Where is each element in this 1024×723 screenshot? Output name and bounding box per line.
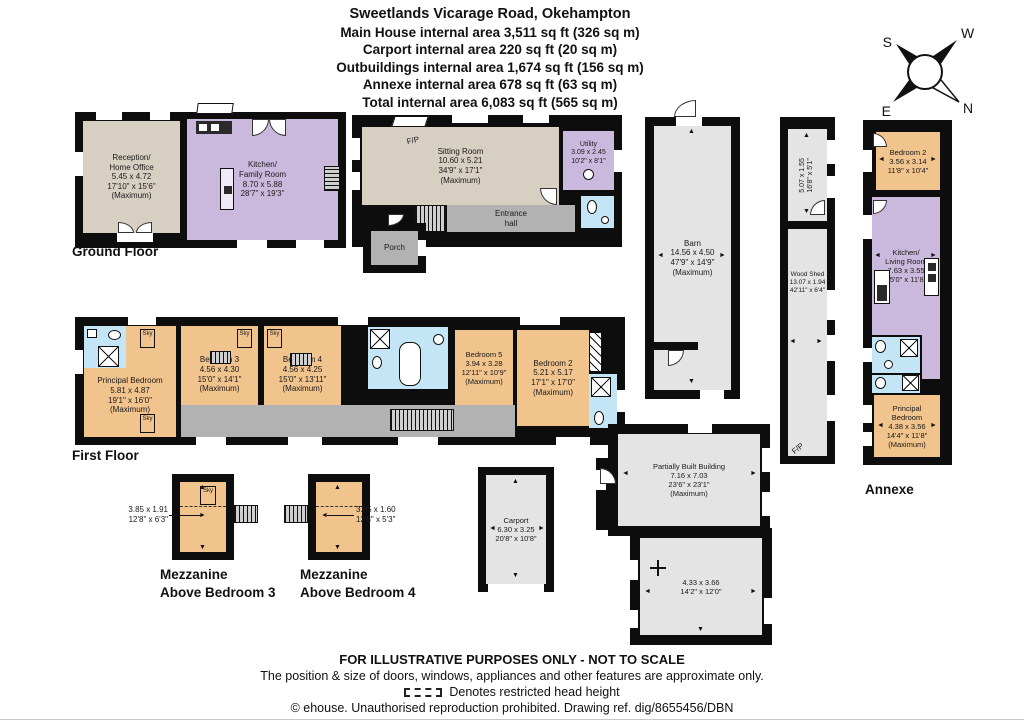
window — [237, 240, 267, 248]
ground-floor-label: Ground Floor — [72, 243, 158, 261]
barn-label: Barn 14.56 x 4.50 47'9" x 14'9" (Maximum… — [670, 239, 714, 277]
sink-icon — [884, 360, 893, 369]
shower-icon — [591, 377, 611, 397]
measure-arrow-icon: ▲ — [688, 128, 695, 135]
bathtub-icon — [399, 342, 421, 386]
window — [827, 335, 835, 361]
measure-arrow-icon: ◄ — [878, 156, 885, 163]
sink-icon — [583, 169, 594, 180]
window — [863, 150, 872, 172]
window — [96, 112, 122, 120]
window — [764, 598, 772, 624]
measure-arrow-icon: ► — [538, 525, 545, 532]
partially-built-lower-label: 4.33 x 3.66 14'2" x 12'0" — [680, 578, 721, 596]
utility-label: Utility 3.09 x 2.45 10'2" x 8'1" — [571, 141, 606, 166]
area-annexe: Annexe internal area 678 sq ft (63 sq m) — [0, 76, 980, 94]
room-partially-built-lower: 4.33 x 3.66 14'2" x 12'0" — [640, 538, 762, 635]
measure-arrow-icon: ► — [930, 156, 937, 163]
window — [630, 610, 638, 628]
measure-arrow-icon: ◄ — [874, 252, 881, 259]
annexe-principal-label: Principal Bedroom 4.38 x 3.56 14'4" x 11… — [887, 404, 928, 449]
skylight: Sky — [267, 329, 282, 348]
measure-arrow-icon: ► — [750, 588, 757, 595]
kitchen-family-label: Kitchen/ Family Room 8.70 x 5.88 28'7" x… — [239, 160, 286, 198]
measure-arrow-icon: ► — [750, 470, 757, 477]
measure-arrow-icon: ▼ — [803, 208, 810, 215]
mezzanine4-label: Mezzanine Above Bedroom 4 — [300, 566, 416, 601]
staircase-mezzanine3 — [234, 505, 258, 523]
survey-cross-icon — [657, 560, 659, 576]
area-carport: Carport internal area 220 sq ft (20 sq m… — [0, 41, 980, 59]
window — [288, 437, 322, 445]
first-floor-label: First Floor — [72, 447, 139, 465]
window — [762, 448, 770, 472]
window — [614, 150, 622, 172]
toilet-icon — [594, 411, 604, 425]
window — [827, 395, 835, 421]
window — [863, 405, 872, 423]
room-porch: Porch — [371, 231, 418, 265]
measure-arrow-icon: ◄ — [489, 525, 496, 532]
mezzanine3-dims: 3.85 x 1.91 12'8" x 6'3" — [122, 505, 168, 524]
window — [827, 290, 835, 320]
measure-arrow-icon: ▲ — [334, 484, 341, 491]
toilet-icon — [372, 356, 382, 369]
restricted-head-height-line — [180, 506, 226, 507]
shower-icon — [902, 375, 919, 391]
measure-arrow-icon: ► — [719, 252, 726, 259]
window — [75, 350, 83, 374]
door-opening — [676, 117, 702, 126]
window — [398, 437, 438, 445]
staircase-kitchen — [324, 166, 340, 191]
window — [150, 112, 170, 120]
measure-arrow-icon: ◄ — [877, 422, 884, 429]
bedroom5-label: Bedroom 5 3.94 x 3.28 12'11" x 10'9" (Ma… — [462, 350, 507, 386]
measure-arrow-icon: ◄ — [321, 512, 328, 519]
staircase-mezzanine4 — [284, 505, 308, 523]
toilet-icon — [875, 377, 886, 389]
radiator-icon — [210, 351, 231, 364]
area-main-house: Main House internal area 3,511 sq ft (32… — [0, 24, 980, 42]
window — [827, 176, 835, 198]
mezzanine3-label: Mezzanine Above Bedroom 3 — [160, 566, 276, 601]
opening — [688, 424, 712, 433]
window — [617, 390, 625, 412]
radiator-icon — [290, 353, 312, 366]
annexe-bedroom2-label: Bedroom 2 3.56 x 3.14 11'8" x 10'4" — [888, 148, 929, 175]
cooker-icon — [196, 121, 232, 134]
page-title: Sweetlands Vicarage Road, Okehampton — [0, 6, 980, 24]
skylight: Sky — [140, 414, 155, 433]
wood-shed-label: Wood Shed 13.07 x 1.94 42'11" x 6'4" — [790, 271, 826, 294]
kitchen-island — [220, 168, 234, 210]
measure-arrow-icon: ▼ — [512, 572, 519, 579]
measure-arrow-icon: ◄ — [789, 338, 796, 345]
entrance-hall-label: Entrance hall — [495, 209, 527, 228]
measure-arrow-icon: ► — [930, 252, 937, 259]
room-partially-built-upper: Partially Built Building 7.16 x 7.03 23'… — [618, 434, 760, 526]
compass-west: W — [961, 25, 975, 41]
window — [863, 432, 872, 446]
shower-icon — [900, 339, 918, 357]
measure-arrow-icon: ▲ — [199, 484, 206, 491]
annexe-label: Annexe — [865, 481, 914, 499]
annexe-kitchen-living-label: Kitchen/ Living Room 7.63 x 3.55 25'0" x… — [885, 248, 927, 284]
staircase-landing — [390, 409, 454, 431]
footer-head-height-note: Denotes restricted head height — [0, 685, 1024, 699]
kitchen-counter — [874, 270, 890, 304]
principal-bedroom-label: Principal Bedroom 5.81 x 4.87 19'1" x 16… — [97, 376, 162, 414]
window — [523, 115, 549, 123]
window — [827, 140, 835, 164]
page-bottom-divider — [0, 719, 1024, 720]
mezzanine4-dims: 3.85 x 1.60 12'8" x 5'3" — [356, 505, 404, 524]
measure-arrow-icon: ► — [930, 422, 937, 429]
compass-east: E — [882, 103, 891, 119]
sink-icon — [87, 329, 97, 338]
footer-copyright: © ehouse. Unauthorised reproduction proh… — [0, 701, 1024, 715]
toilet-icon — [108, 330, 121, 340]
room-sitting: Sitting Room 10.60 x 5.21 34'9" x 17'1" … — [362, 127, 559, 205]
carport-opening — [488, 584, 544, 592]
kitchen-counter — [924, 258, 939, 296]
skylight: Sky — [237, 329, 252, 348]
shower-icon — [98, 346, 119, 367]
measure-arrow-icon: ◄ — [644, 588, 651, 595]
store-label: 5.07 x 1.55 16'8" x 5'1" — [799, 156, 816, 195]
porch-label: Porch — [384, 243, 405, 253]
window — [630, 560, 638, 580]
window — [296, 240, 324, 248]
room-bedroom2-first: Bedroom 2 5.21 x 5.17 17'1" x 17'0" (Max… — [517, 330, 589, 426]
sink-icon — [433, 334, 444, 345]
sink-icon — [601, 216, 609, 224]
window — [352, 172, 360, 190]
extractor-hood-icon — [196, 103, 234, 114]
reception-label: Reception/ Home Office 5.45 x 4.72 17'10… — [107, 153, 155, 201]
appliance-icon — [928, 274, 936, 282]
measure-arrow-icon: ◄ — [622, 470, 629, 477]
dimension-line — [169, 515, 201, 516]
measure-arrow-icon: ▼ — [334, 544, 341, 551]
partially-built-label: Partially Built Building 7.16 x 7.03 23'… — [653, 462, 725, 498]
measure-arrow-icon: ◄ — [657, 252, 664, 259]
measure-arrow-icon: ▲ — [512, 478, 519, 485]
window — [863, 215, 872, 239]
window — [338, 317, 368, 325]
carport-label: Carport 6.30 x 3.25 20'8" x 10'8" — [495, 516, 536, 543]
dimension-line — [327, 515, 354, 516]
title-block: Sweetlands Vicarage Road, Okehampton Mai… — [0, 6, 980, 111]
footer-head-height-text: Denotes restricted head height — [449, 685, 619, 699]
window — [556, 437, 590, 445]
area-outbuildings: Outbuildings internal area 1,674 sq ft (… — [0, 59, 980, 77]
bedroom2-first-label: Bedroom 2 5.21 x 5.17 17'1" x 17'0" (Max… — [531, 359, 575, 397]
annexe-kitchen-lobby — [922, 335, 940, 379]
compass-south: S — [883, 34, 892, 50]
room-bedroom5: Bedroom 5 3.94 x 3.28 12'11" x 10'9" (Ma… — [455, 330, 513, 406]
room-wc — [581, 196, 614, 228]
fireplace-icon — [391, 116, 429, 127]
measure-arrow-icon: ▲ — [803, 132, 810, 139]
footer-approximate-note: The position & size of doors, windows, a… — [0, 669, 1024, 683]
window — [863, 348, 872, 362]
measure-arrow-icon: ▼ — [199, 544, 206, 551]
sitting-room-label: Sitting Room 10.60 x 5.21 34'9" x 17'1" … — [438, 147, 484, 185]
skylight: Sky — [140, 329, 155, 348]
compass-north: N — [963, 100, 973, 116]
toilet-icon — [587, 200, 597, 214]
french-door-opening — [117, 233, 153, 242]
window — [128, 317, 156, 325]
measure-arrow-icon: ▼ — [697, 626, 704, 633]
wardrobe-icon — [589, 332, 602, 372]
room-entrance-hall: Entrance hall — [447, 205, 575, 232]
window — [762, 492, 770, 516]
window — [352, 138, 360, 160]
barn-internal-wall — [654, 342, 698, 350]
measure-arrow-icon: ► — [816, 338, 823, 345]
room-reception-home-office: Reception/ Home Office 5.45 x 4.72 17'10… — [83, 121, 180, 233]
window — [418, 240, 426, 256]
measure-arrow-icon: ► — [199, 512, 206, 519]
room-kitchen-family: Kitchen/ Family Room 8.70 x 5.88 28'7" x… — [187, 119, 338, 240]
area-total: Total internal area 6,083 sq ft (565 sq … — [0, 94, 980, 112]
shower-icon — [370, 329, 390, 349]
window — [520, 317, 560, 325]
window — [452, 115, 488, 123]
compass-icon: S W E N — [862, 20, 988, 120]
restricted-head-height-icon — [404, 688, 442, 697]
footer-disclaimer: FOR ILLUSTRATIVE PURPOSES ONLY - NOT TO … — [0, 652, 1024, 667]
appliance-icon — [928, 263, 936, 271]
room-utility: Utility 3.09 x 2.45 10'2" x 8'1" — [563, 131, 614, 190]
first-floor-landing — [181, 405, 515, 437]
window — [196, 437, 226, 445]
window — [75, 152, 83, 176]
door-opening — [700, 390, 724, 399]
toilet-icon — [875, 340, 886, 353]
stove-icon — [877, 285, 887, 301]
measure-arrow-icon: ▼ — [688, 378, 695, 385]
